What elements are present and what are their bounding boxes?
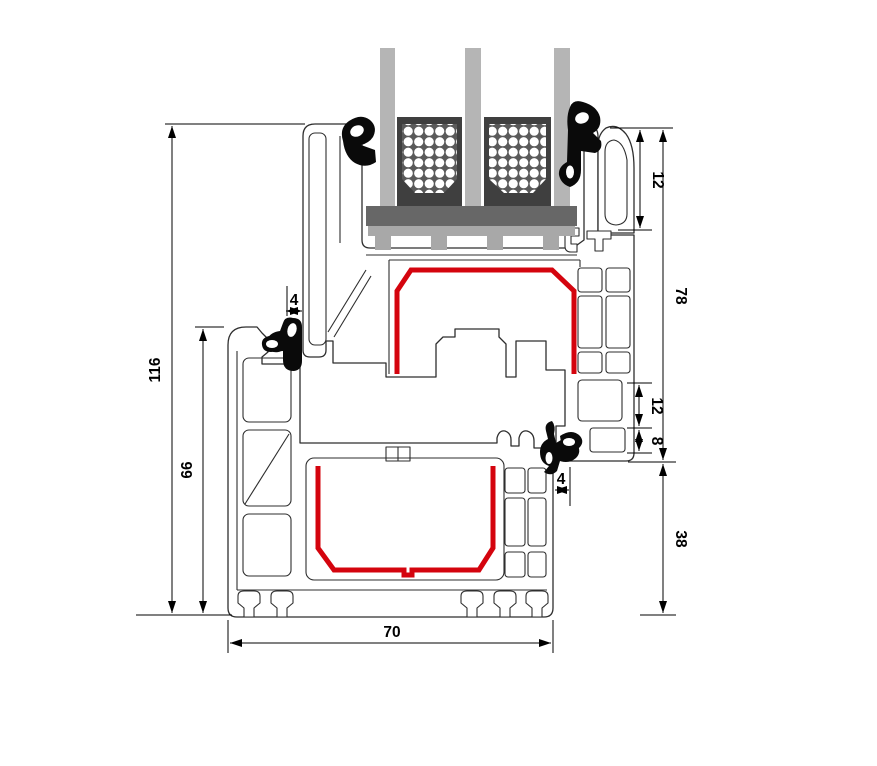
dim-label-8: 8 (648, 437, 665, 446)
dim-label-116: 116 (147, 357, 164, 382)
dim-label-66: 66 (179, 461, 196, 479)
glazing-bridge (368, 226, 575, 236)
desiccant-dots-1 (402, 124, 457, 193)
glazing-bridge-tab (487, 236, 503, 250)
triple-glazing-unit (366, 48, 577, 250)
dim-label-38: 38 (672, 530, 689, 548)
frame-rebate-gasket-left (262, 318, 302, 371)
dim-label-70: 70 (383, 624, 400, 641)
dim-label-12-top: 12 (649, 171, 666, 188)
desiccant-dots-2 (489, 124, 546, 193)
dim-label-12-mid: 12 (648, 397, 665, 414)
glazing-bridge-tab (543, 236, 559, 250)
dim-label-4-top: 4 (290, 292, 299, 309)
setting-block (366, 206, 577, 226)
sash-outer-face (598, 126, 634, 233)
glass-pane-1 (380, 48, 395, 207)
dim-label-78: 78 (672, 287, 689, 305)
dim-label-4-side: 4 (557, 471, 566, 488)
glass-pane-2 (465, 48, 481, 207)
window-profile-cross-section-drawing: 116 66 4 4 12 78 12 8 38 70 (0, 0, 877, 766)
glazing-bridge-tab (375, 236, 391, 250)
glazing-bridge-tab (431, 236, 447, 250)
